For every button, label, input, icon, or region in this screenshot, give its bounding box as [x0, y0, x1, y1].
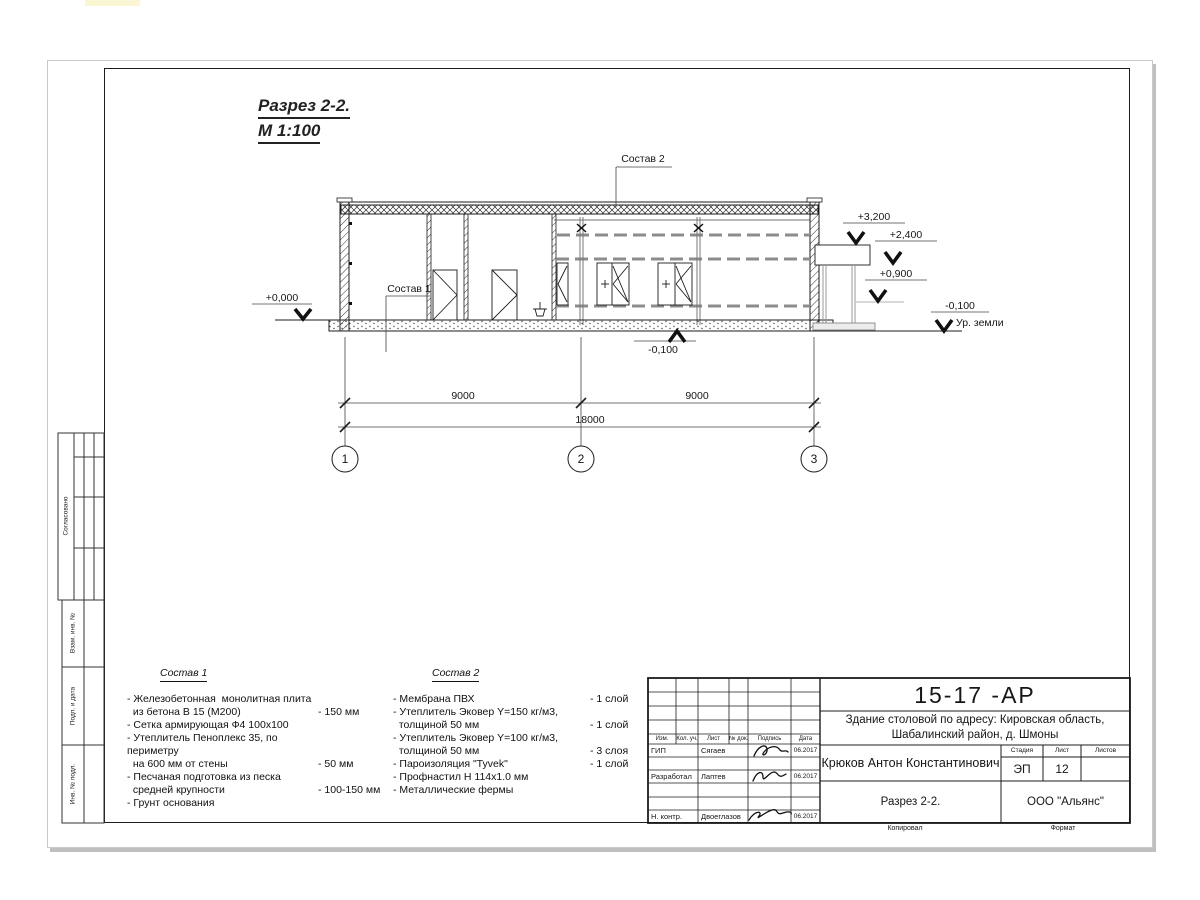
- list-item: - Мембрана ПВХ- 1 слой: [393, 693, 640, 706]
- col-date: Дата: [791, 734, 820, 744]
- elevation-3200: +3,200: [843, 211, 905, 223]
- sostav2-label: Состав 2: [614, 153, 672, 165]
- list-item: - Утеплитель Пеноплекс 35, по периметру …: [127, 732, 380, 771]
- axis-2: 2: [568, 446, 594, 472]
- drawing-scale: М 1:100: [258, 121, 320, 144]
- row-name: Двоеглазов: [701, 810, 748, 823]
- col-doc: № док.: [729, 734, 748, 744]
- list-item: - Утеплитель Эковер Y=150 кг/м3, толщино…: [393, 706, 640, 732]
- stage-value: ЭП: [1001, 757, 1043, 781]
- margin-label-podp: Подп. и дата: [70, 687, 77, 725]
- col-izm: Изм.: [648, 734, 676, 744]
- project-name: Здание столовой по адресу: Кировская обл…: [822, 713, 1128, 745]
- ground-level-label: Ур. земли: [956, 317, 1004, 329]
- sostav1-label: Состав 1: [384, 283, 434, 295]
- copied-label: Копировал: [868, 825, 942, 832]
- chief-name: Крюков Антон Константинович: [820, 745, 1001, 781]
- col-list: Лист: [698, 734, 729, 744]
- format-label: Формат: [1026, 825, 1100, 832]
- row-date: 06.2017: [791, 744, 820, 757]
- dim-9000-right: 9000: [667, 390, 727, 402]
- row-name: Сягаев: [701, 744, 747, 757]
- row-role: Разработал: [651, 770, 697, 783]
- sheets-label: Листов: [1081, 745, 1130, 757]
- list-item: - Металлические фермы: [393, 784, 640, 797]
- sostav1-list: Состав 1 - Железобетонная монолитная пли…: [127, 667, 380, 810]
- drawing-title: Разрез 2-2.: [258, 96, 350, 119]
- sheets-value: [1081, 757, 1130, 781]
- scan-artifact: [85, 0, 140, 6]
- list-item: - Грунт основания: [127, 797, 380, 810]
- list-item: - Пароизоляция "Tyvek"- 1 слой: [393, 758, 640, 771]
- row-role: ГИП: [651, 744, 696, 757]
- list-item: - Утеплитель Эковер Y=100 кг/м3, толщино…: [393, 732, 640, 758]
- margin-label-vzam: Взам. инв. №: [70, 613, 77, 653]
- list-item: - Профнастил Н 114х1.0 мм: [393, 771, 640, 784]
- sheet-title: Разрез 2-2.: [820, 781, 1001, 823]
- dim-18000: 18000: [557, 414, 623, 426]
- row-name: Лаптев: [701, 770, 747, 783]
- col-sign: Подпись: [748, 734, 791, 744]
- company-name: ООО "Альянс": [1001, 781, 1130, 823]
- col-kol: Кол. уч.: [676, 734, 698, 744]
- sostav2-list: Состав 2 - Мембрана ПВХ- 1 слой - Утепли…: [393, 667, 640, 797]
- row-date: 06.2017: [791, 770, 820, 783]
- elevation-zero: +0,000: [252, 292, 312, 304]
- row-date: 06.2017: [791, 810, 820, 823]
- dim-9000-left: 9000: [433, 390, 493, 402]
- elevation-0900: +0,900: [865, 268, 927, 280]
- stage-label: Стадия: [1001, 745, 1043, 757]
- elevation-minus100-center: -0,100: [632, 344, 694, 356]
- sostav1-list-title: Состав 1: [160, 667, 207, 682]
- sheet-value: 12: [1043, 757, 1081, 781]
- margin-label-inv: Инв. № подл.: [70, 764, 77, 805]
- elevation-minus100-right: -0,100: [931, 300, 989, 312]
- row-role: Н. контр.: [651, 810, 697, 823]
- axis-1: 1: [332, 446, 358, 472]
- axis-3: 3: [801, 446, 827, 472]
- list-item: - Сетка армирующая Ф4 100х100: [127, 719, 380, 732]
- list-item: - Железобетонная монолитная плита из бет…: [127, 693, 380, 719]
- elevation-2400: +2,400: [875, 229, 937, 241]
- sostav2-list-title: Состав 2: [432, 667, 479, 682]
- drawing-sheet: Разрез 2-2. М 1:100 Состав 2 Состав 1 +0…: [0, 0, 1200, 900]
- doc-number: 15-17 -АР: [820, 679, 1130, 711]
- list-item: - Песчаная подготовка из песка средней к…: [127, 771, 380, 797]
- margin-label-approved: Согласовано: [63, 496, 70, 535]
- sheet-label: Лист: [1043, 745, 1081, 757]
